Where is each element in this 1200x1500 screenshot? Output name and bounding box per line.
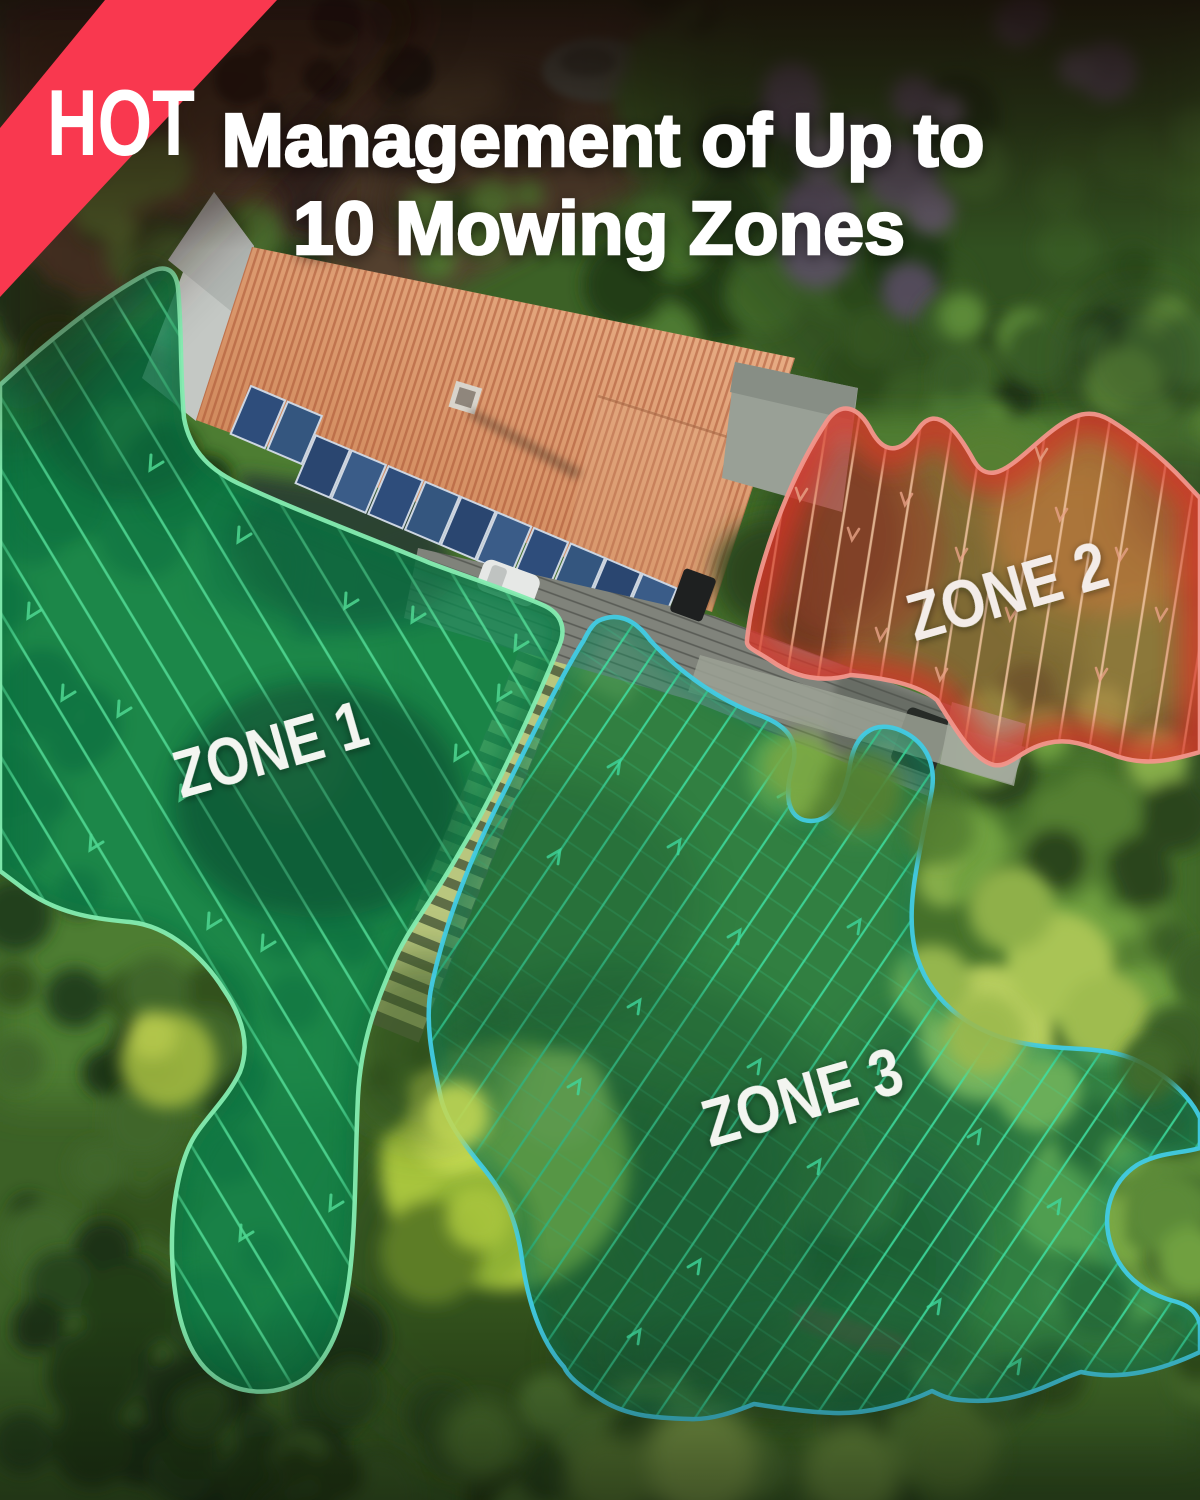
svg-text:10 Mowing Zones: 10 Mowing Zones bbox=[293, 186, 905, 270]
svg-text:Management of Up to: Management of Up to bbox=[222, 98, 985, 182]
svg-text:HOT: HOT bbox=[47, 70, 195, 175]
